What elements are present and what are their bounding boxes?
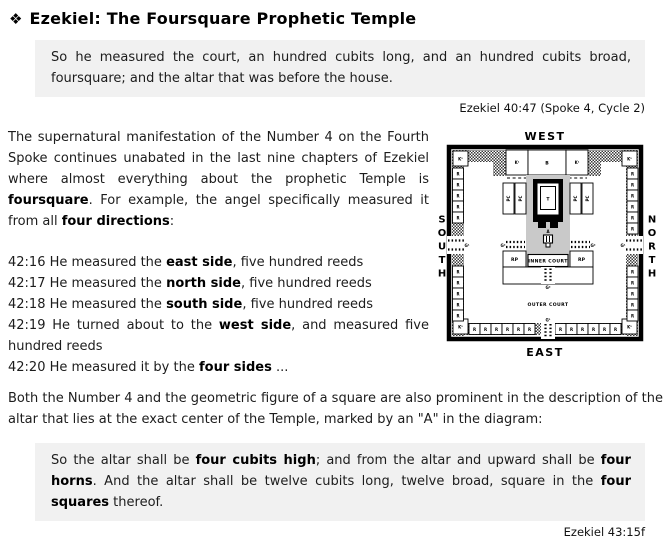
temple-diagram-figure: R K¹ WEST EAST SOUTH NORTH <box>435 128 663 378</box>
intro-paragraph: The supernatural manifestation of the Nu… <box>8 127 429 232</box>
south-gate <box>447 236 465 254</box>
verse-line: 42:20 He measured it by the four sides .… <box>8 357 429 378</box>
verse-line: 42:18 He measured the south side, five h… <box>8 294 429 315</box>
quote-citation-2: Ezekiel 43:15f <box>8 525 645 539</box>
temple-building: T <box>533 179 563 228</box>
page-header: ❖ Ezekiel: The Foursquare Prophetic Temp… <box>9 9 663 29</box>
text-column: The supernatural manifestation of the Nu… <box>8 127 429 378</box>
south-label: SOUTH <box>437 214 448 282</box>
inner-gate-label: G² <box>545 285 550 290</box>
outer-gate-label: G¹ <box>464 243 469 248</box>
room-k-label: K¹ <box>515 160 520 165</box>
scripture-quote-1: So he measured the court, an hundred cub… <box>35 40 645 97</box>
main-content: The supernatural manifestation of the Nu… <box>8 127 663 378</box>
room-pc-label: PC <box>585 196 590 202</box>
diamond-bullet-icon: ❖ <box>9 9 22 29</box>
page-title: Ezekiel: The Foursquare Prophetic Temple <box>29 9 416 28</box>
quote-citation-1: Ezekiel 40:47 (Spoke 4, Cycle 2) <box>8 101 645 115</box>
outer-gate-label: G¹ <box>620 243 625 248</box>
north-gate <box>625 236 643 254</box>
building-b-label: B <box>545 161 549 167</box>
verse-line: 42:17 He measured the north side, five h… <box>8 273 429 294</box>
inner-gate-label: G² <box>500 243 505 248</box>
altar-paragraph: Both the Number 4 and the geometric figu… <box>8 388 663 430</box>
room-rp-label: RP <box>578 257 586 263</box>
page-root: ❖ Ezekiel: The Foursquare Prophetic Temp… <box>0 0 671 539</box>
verse-line: 42:16 He measured the east side, five hu… <box>8 252 429 273</box>
room-pc-label: PC <box>573 196 578 202</box>
north-label: NORTH <box>647 214 658 282</box>
east-gate <box>541 323 555 340</box>
verse-line: 42:19 He turned about to the west side, … <box>8 315 429 357</box>
room-pc-label: PC <box>518 196 523 202</box>
quote-text: So he measured the court, an hundred cub… <box>51 50 631 86</box>
inner-gate-label: G² <box>590 243 595 248</box>
inner-court-label: INNER COURT <box>528 258 568 264</box>
room-k-label: K¹ <box>575 160 580 165</box>
verse-list: 42:16 He measured the east side, five hu… <box>8 252 429 378</box>
west-label: WEST <box>524 130 565 143</box>
outer-court-label: OUTER COURT <box>528 302 569 308</box>
scripture-quote-2: So the altar shall be four cubits high; … <box>35 443 645 521</box>
temple-diagram: R K¹ WEST EAST SOUTH NORTH <box>435 128 661 364</box>
room-rp-label: RP <box>511 257 519 263</box>
east-label: EAST <box>526 346 563 359</box>
outer-gate-label: G¹ <box>545 318 550 323</box>
room-pc-label: PC <box>506 196 511 202</box>
